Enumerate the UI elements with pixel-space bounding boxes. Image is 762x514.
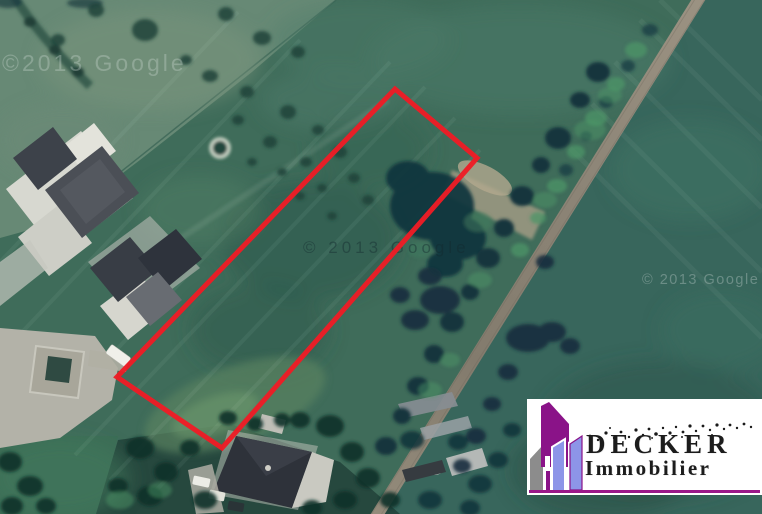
logo-tagline: Immobilier — [585, 458, 761, 479]
logo-brand: DECKER — [586, 431, 762, 458]
google-watermark-top-left: ©2013 Google — [2, 50, 187, 76]
satellite-photo: ©2013 Google © 2013 Google © 2013 Google — [0, 0, 762, 514]
buildings-logo-icon — [528, 400, 586, 495]
logo-underline — [529, 490, 760, 493]
agency-logo: DECKER Immobilier — [527, 399, 762, 495]
round-tank — [211, 139, 229, 157]
google-watermark-center: © 2013 Google — [303, 238, 470, 257]
logo-text-block: DECKER Immobilier — [584, 401, 760, 489]
google-watermark-right: © 2013 Google — [642, 272, 759, 288]
